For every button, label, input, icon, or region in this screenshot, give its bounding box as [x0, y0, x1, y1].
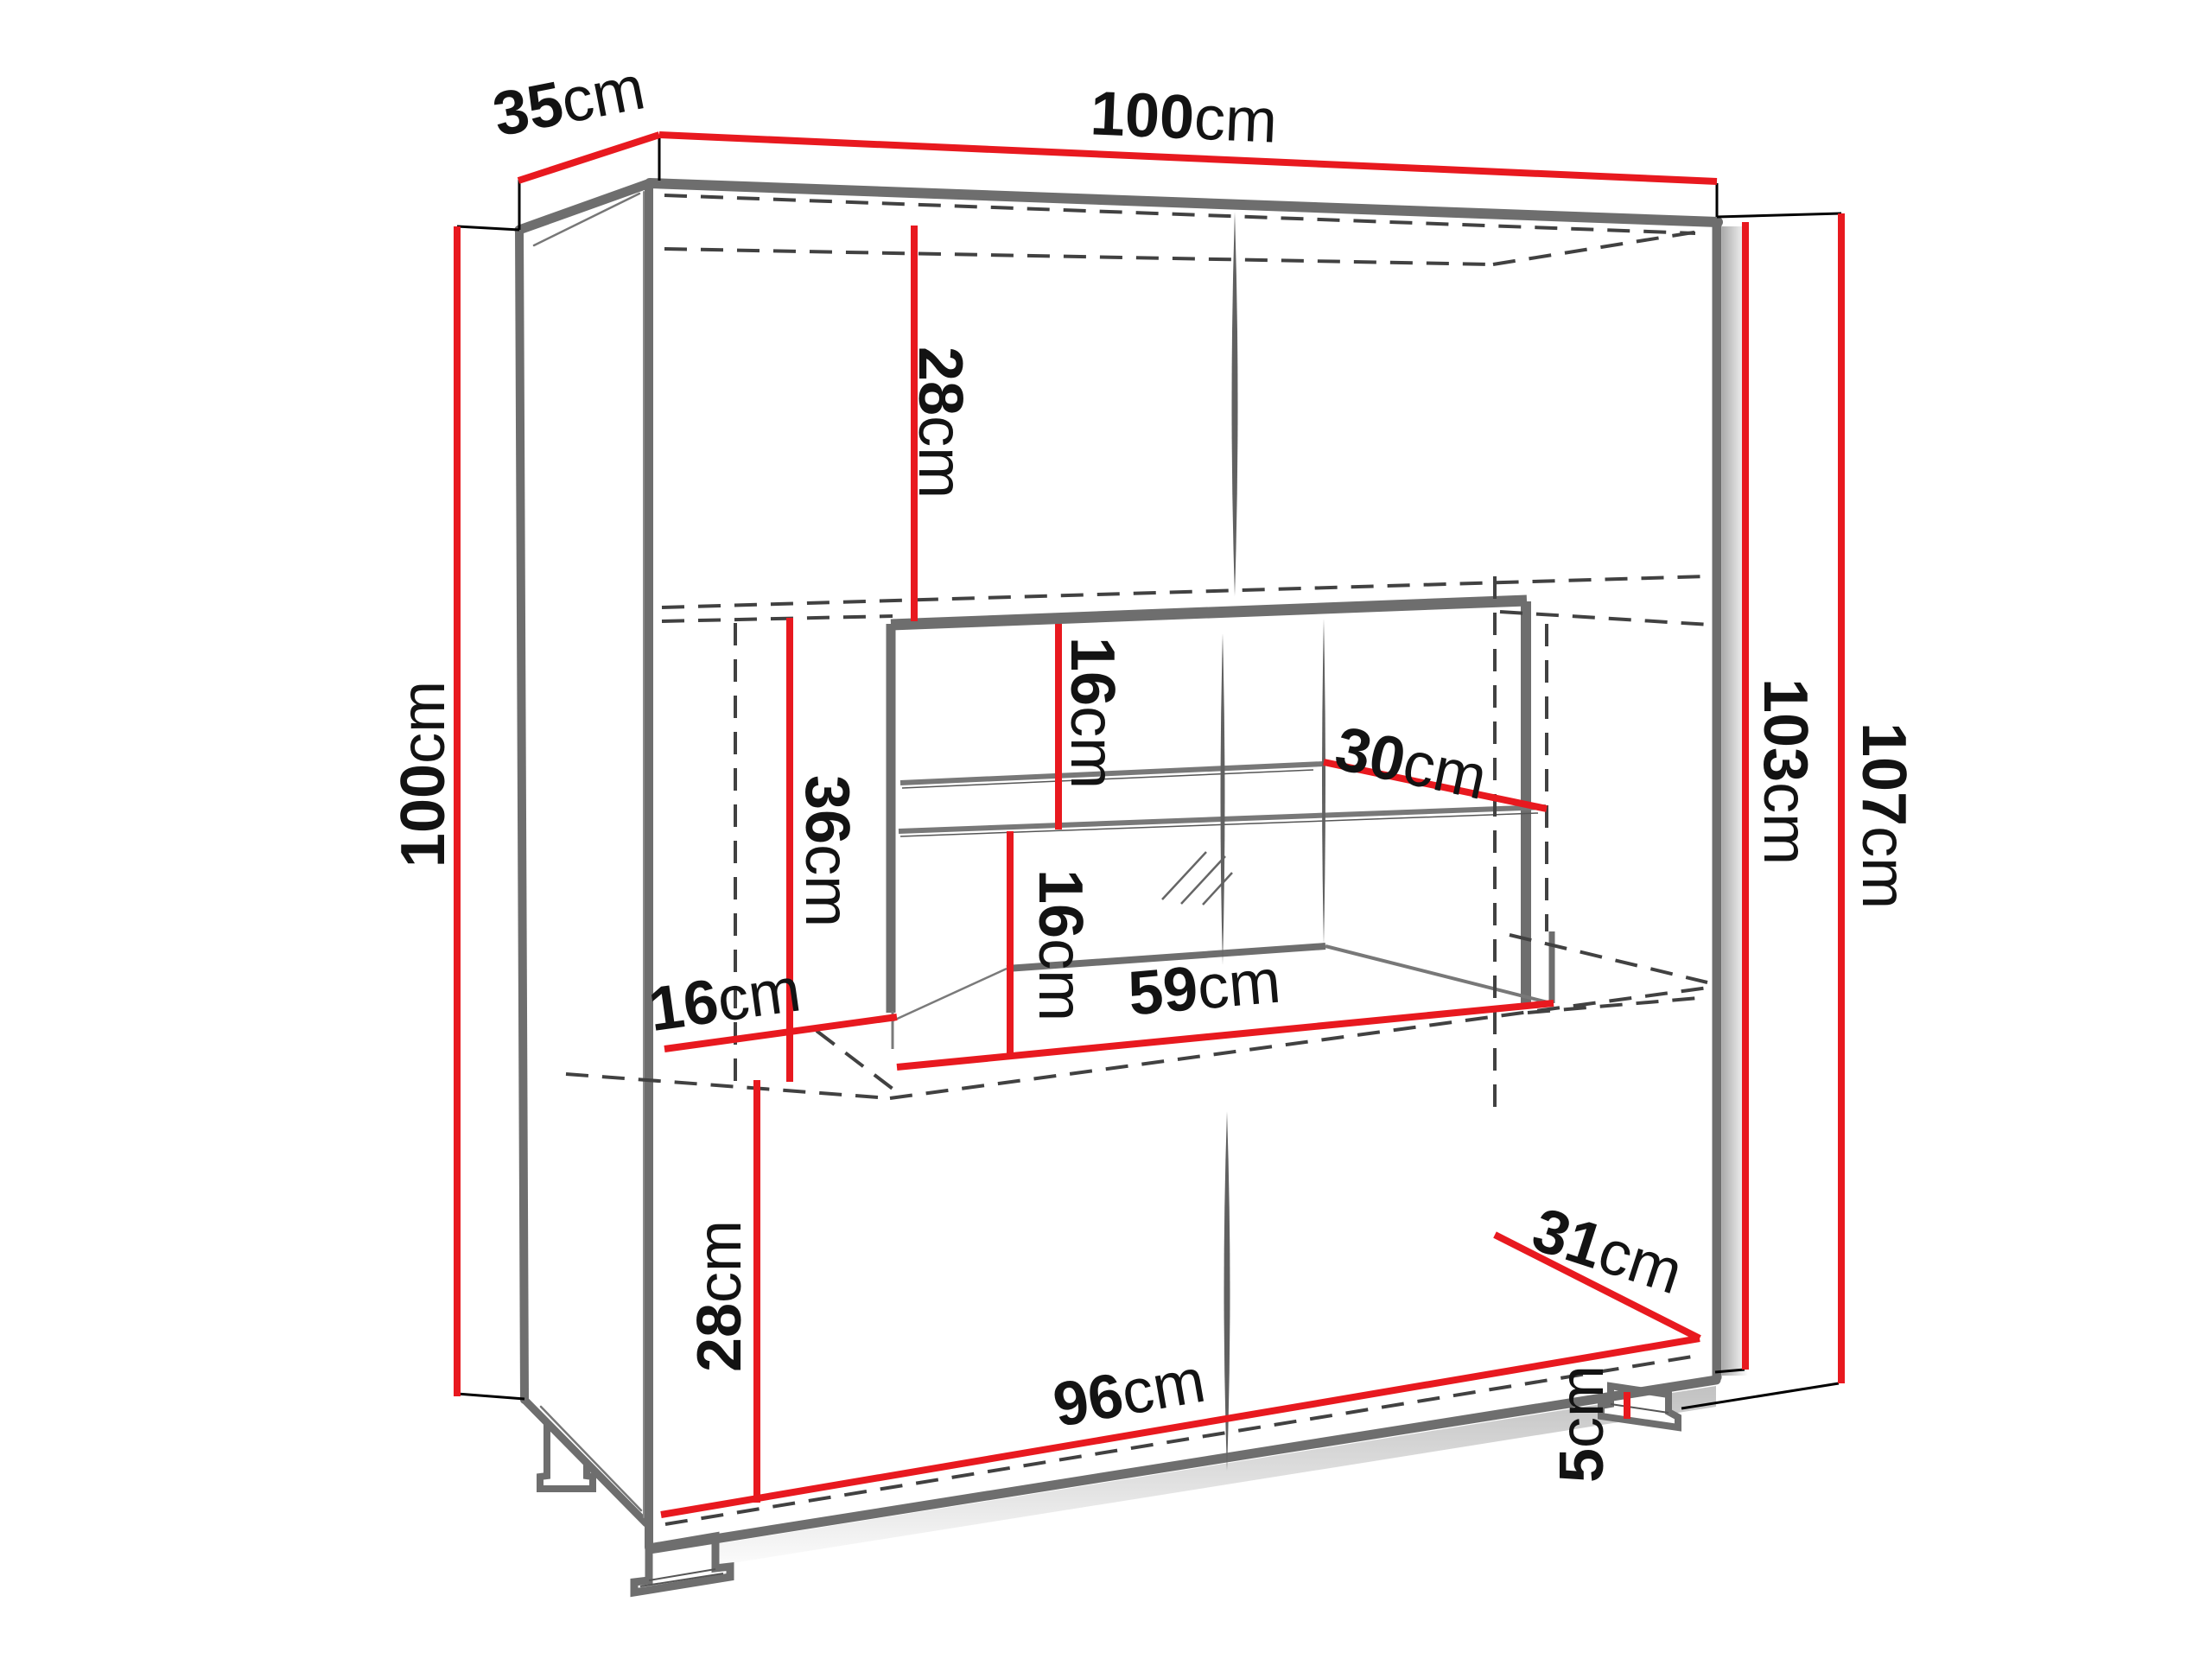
svg-text:103cm: 103cm	[1751, 678, 1820, 865]
svg-text:100cm: 100cm	[1089, 79, 1278, 156]
svg-text:28cm: 28cm	[906, 346, 975, 499]
svg-text:59cm: 59cm	[1126, 947, 1283, 1029]
svg-text:100cm: 100cm	[389, 681, 458, 868]
svg-text:16cm: 16cm	[1058, 637, 1127, 789]
svg-text:36cm: 36cm	[792, 775, 861, 927]
svg-text:16cm: 16cm	[1026, 869, 1095, 1021]
svg-text:107cm: 107cm	[1849, 722, 1918, 909]
svg-text:5cm: 5cm	[1548, 1365, 1617, 1483]
svg-text:28cm: 28cm	[685, 1220, 754, 1372]
